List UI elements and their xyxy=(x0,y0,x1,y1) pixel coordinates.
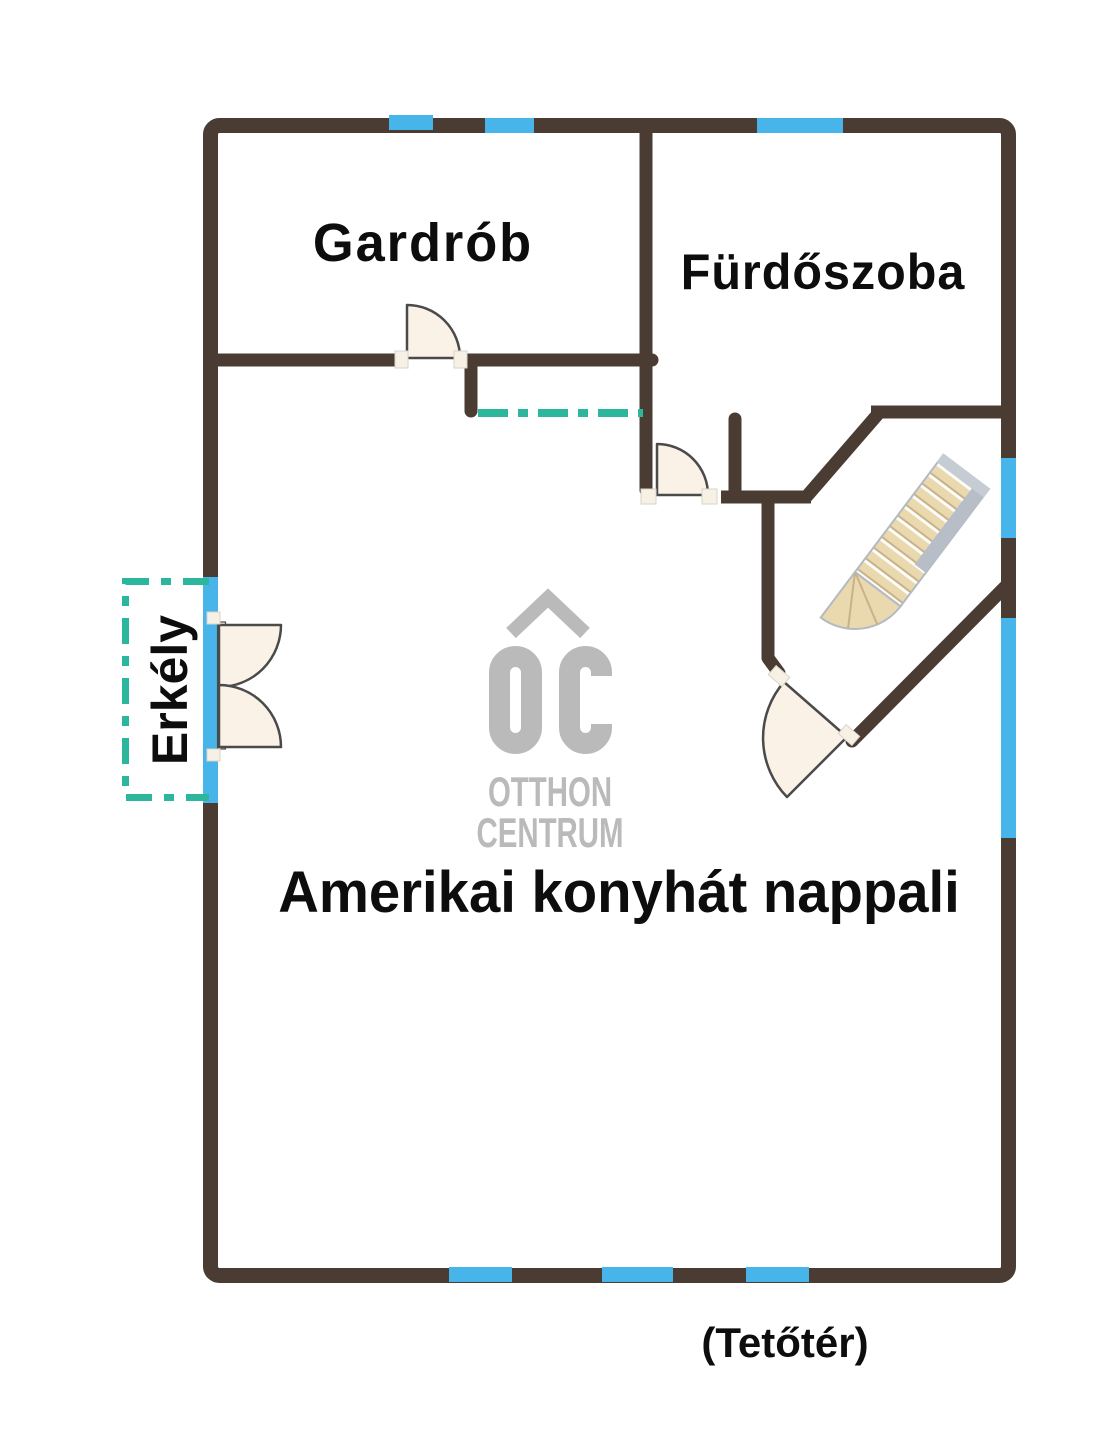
jamb xyxy=(395,351,408,368)
window-bottom-1 xyxy=(449,1267,512,1282)
logo-letter-o xyxy=(500,657,532,744)
window-balcony-door xyxy=(203,577,218,803)
window-top-2 xyxy=(485,118,534,133)
room-label-furdoszoba: Fürdőszoba xyxy=(681,247,966,297)
logo-text-otthon: OTTHON xyxy=(488,771,612,813)
jamb xyxy=(454,351,467,368)
door-bathroom xyxy=(657,444,708,495)
room-label-nappali: Amerikai konyhát nappali xyxy=(278,864,960,922)
room-label-erkely: Erkély xyxy=(145,615,195,765)
door-gardrob xyxy=(407,305,460,358)
window-top-3 xyxy=(757,118,843,133)
floor-note-tetoter: (Tetőtér) xyxy=(701,1322,868,1364)
wall-diagonal-a xyxy=(807,414,878,496)
jamb xyxy=(702,489,717,504)
room-label-gardrob: Gardrób xyxy=(313,216,533,270)
window-bottom-2 xyxy=(602,1267,673,1282)
window-right-2 xyxy=(1001,618,1016,838)
jamb xyxy=(641,489,656,504)
jamb xyxy=(207,749,220,761)
window-right-1 xyxy=(1001,458,1016,538)
door-balcony-bottom xyxy=(219,685,281,747)
jamb xyxy=(207,612,220,624)
logo-letter-c-gap xyxy=(590,676,618,724)
logo-roof-icon xyxy=(511,598,585,633)
window-top-1 xyxy=(389,115,433,130)
door-balcony-top xyxy=(219,625,281,687)
floor-plan: Gardrób Fürdőszoba Amerikai konyhát napp… xyxy=(0,0,1100,1440)
otthon-centrum-logo xyxy=(500,598,619,744)
window-bottom-3 xyxy=(746,1267,809,1282)
door-stairhall xyxy=(763,682,847,797)
logo-text-centrum: CENTRUM xyxy=(477,812,624,854)
